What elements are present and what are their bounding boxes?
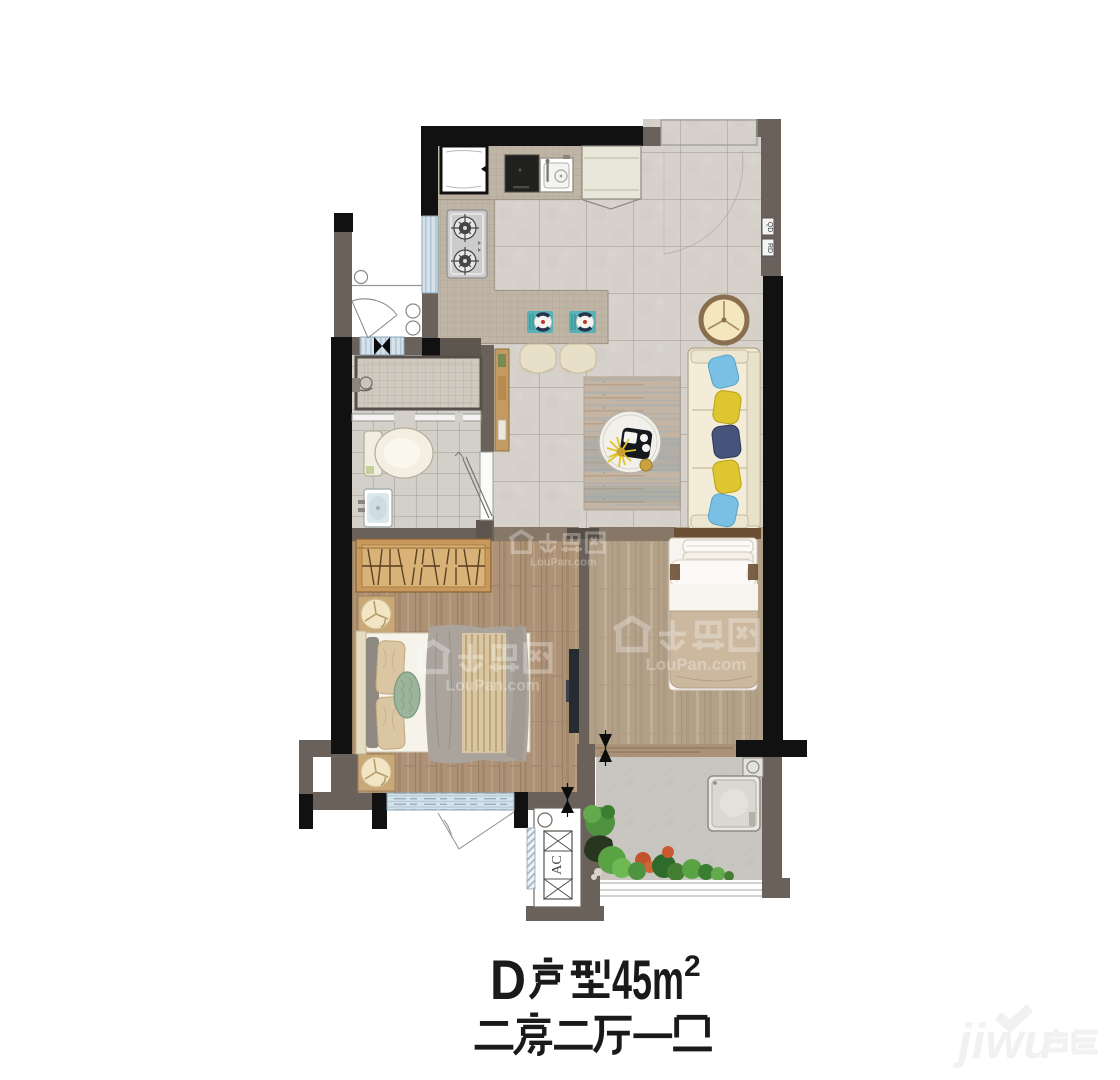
svg-text:RD: RD <box>766 243 773 253</box>
svg-text:LouPan.com: LouPan.com <box>530 557 597 569</box>
svg-text:AC: AC <box>550 855 565 874</box>
svg-text:QD: QD <box>766 222 773 233</box>
svg-text:D: D <box>490 948 526 1011</box>
svg-text:LouPan.com: LouPan.com <box>446 677 540 694</box>
svg-text:LouPan.com: LouPan.com <box>646 655 747 674</box>
svg-text:45m: 45m <box>612 948 684 1011</box>
svg-text:2: 2 <box>684 950 701 983</box>
